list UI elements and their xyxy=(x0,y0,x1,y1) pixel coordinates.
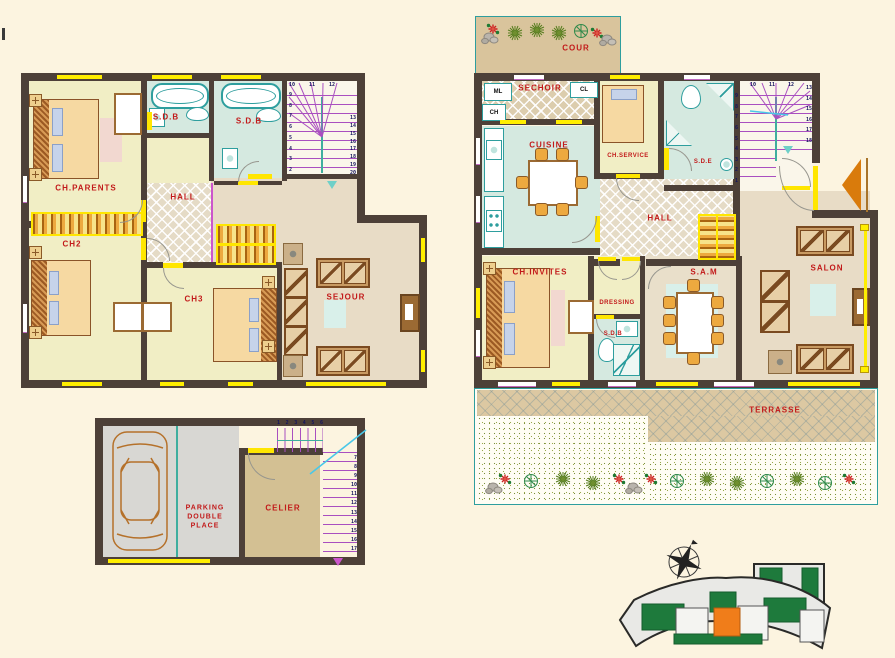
parking-line: DOUBLE xyxy=(186,512,225,521)
plant-pot-icon xyxy=(29,168,42,181)
chair xyxy=(687,279,700,292)
wall xyxy=(646,259,740,266)
terrasse-paved xyxy=(477,390,875,416)
pillow xyxy=(52,144,63,172)
wardrobe xyxy=(698,214,718,260)
chair xyxy=(711,314,724,327)
bed-ch-invites xyxy=(486,268,550,368)
wall xyxy=(812,73,820,163)
wall xyxy=(21,73,29,388)
toilet xyxy=(186,107,209,121)
window xyxy=(62,382,102,386)
pillow xyxy=(611,89,637,100)
stair-numbers-right: 131415161718 xyxy=(803,86,812,144)
room-label-cuisine: CUISINE xyxy=(529,141,568,150)
room-dressing-upper xyxy=(147,138,209,183)
closet-cl: CL xyxy=(570,82,598,98)
window xyxy=(500,120,526,124)
room-label-ch-service: CH.SERVICE xyxy=(607,153,649,159)
wardrobe xyxy=(216,224,276,245)
car-icon xyxy=(108,426,172,556)
rug xyxy=(324,300,346,328)
wall xyxy=(357,215,427,223)
desk xyxy=(114,93,142,135)
kitchen-table xyxy=(528,160,578,206)
plant-pot-icon xyxy=(262,276,275,289)
parking-line: PLACE xyxy=(186,522,225,531)
chair xyxy=(516,176,529,189)
bed-ch2 xyxy=(31,260,91,336)
pillow xyxy=(52,108,63,136)
side-table xyxy=(283,355,303,377)
desk xyxy=(113,302,143,332)
wall xyxy=(277,268,282,380)
bathtub xyxy=(221,83,281,109)
window xyxy=(608,382,636,386)
window xyxy=(23,304,27,332)
washbasin xyxy=(222,148,238,169)
window xyxy=(228,382,253,386)
stove xyxy=(486,210,502,232)
wall xyxy=(870,210,878,388)
side-table xyxy=(283,243,303,265)
desk xyxy=(142,302,172,332)
window-frame xyxy=(864,230,867,366)
wall xyxy=(209,81,214,181)
stair-numbers-right: 1314151617181920 xyxy=(347,116,356,176)
plant-pot-icon xyxy=(483,262,496,275)
garage-door xyxy=(108,559,210,563)
armchair xyxy=(760,270,790,302)
armchair xyxy=(284,268,308,298)
stair-direction-arrow xyxy=(327,181,337,189)
bed-ch-service xyxy=(602,85,644,143)
room-label-hall-ground: HALL xyxy=(647,214,672,223)
window xyxy=(23,176,27,202)
washbasin xyxy=(720,158,733,171)
chair xyxy=(687,352,700,365)
stair-diagonal xyxy=(305,425,370,480)
washing-machine: ML xyxy=(484,83,512,101)
window xyxy=(684,75,710,79)
window xyxy=(556,120,582,124)
window xyxy=(476,196,480,222)
wall xyxy=(239,448,245,557)
tv-screen xyxy=(857,299,863,314)
chair xyxy=(663,296,676,309)
window xyxy=(552,382,580,386)
stair-direction-arrow xyxy=(783,146,793,154)
armchair xyxy=(284,326,308,356)
stair-numbers-left: 987654321 xyxy=(735,94,743,184)
room-label-hall: HALL xyxy=(170,193,195,202)
window xyxy=(498,382,536,386)
bedside-rug xyxy=(551,290,565,346)
window xyxy=(57,75,102,79)
kitchen-sink xyxy=(486,140,502,160)
armchair xyxy=(284,297,308,327)
pillow xyxy=(249,298,259,322)
window xyxy=(656,382,698,386)
window xyxy=(160,382,184,386)
plant-pot-icon xyxy=(29,94,42,107)
room-label-sam: S.A.M xyxy=(690,268,717,277)
chair xyxy=(556,148,569,161)
pillow xyxy=(504,281,515,313)
chair xyxy=(556,203,569,216)
window xyxy=(476,330,480,356)
terrasse-plants xyxy=(479,455,873,501)
window xyxy=(152,75,192,79)
wardrobe xyxy=(716,214,736,260)
room-label-ch2: CH2 xyxy=(62,240,81,249)
room-label-sechoir: SECHOIR xyxy=(518,84,561,93)
window-frame-end xyxy=(860,366,869,373)
bed-headboard xyxy=(487,269,502,367)
room-label-terrasse: TERRASSE xyxy=(749,406,801,415)
sofa xyxy=(316,258,370,288)
rug xyxy=(810,284,836,316)
wall xyxy=(664,185,740,191)
parking-line: PARKING xyxy=(186,503,225,512)
room-label-sdb-ground: S.D.B xyxy=(604,331,623,337)
edge-mark xyxy=(2,28,5,40)
dining-table xyxy=(676,292,714,354)
kitchen-counter xyxy=(484,128,504,192)
tv-screen xyxy=(405,304,413,320)
door-frame xyxy=(211,183,213,262)
chair xyxy=(711,296,724,309)
plant-pot-icon xyxy=(483,356,496,369)
armchair xyxy=(760,301,790,333)
toilet xyxy=(681,85,701,109)
window xyxy=(714,382,754,386)
shower xyxy=(613,344,640,376)
pillow xyxy=(49,301,59,325)
room-label-sejour: SEJOUR xyxy=(327,293,366,302)
window xyxy=(421,350,425,372)
room-label-ch-parents: CH.PARENTS xyxy=(55,184,116,193)
room-label-ch-invites: CH.INVITES xyxy=(513,268,568,277)
parking-divider xyxy=(176,426,178,557)
wall xyxy=(474,248,600,255)
floor-plan-drawing: 101112 98765432 1314151617181920 CH.PARE… xyxy=(0,0,895,658)
door-leaf xyxy=(141,238,146,260)
room-label-sdb-left: S.D.B xyxy=(153,113,179,122)
pillow xyxy=(504,323,515,355)
chair xyxy=(663,332,676,345)
bed-headboard xyxy=(32,261,47,335)
window xyxy=(221,75,261,79)
entry-arrow-icon xyxy=(842,159,861,211)
wall xyxy=(640,256,645,380)
window xyxy=(788,382,860,386)
chair xyxy=(663,314,676,327)
stair-numbers-fan: 101112 xyxy=(750,83,794,88)
chair xyxy=(711,332,724,345)
window xyxy=(421,238,425,262)
desk xyxy=(568,300,594,334)
sofa xyxy=(796,226,854,256)
pillow xyxy=(49,271,59,295)
room-label-dressing: DRESSING xyxy=(599,300,634,306)
room-label-ch3: CH3 xyxy=(184,295,203,304)
room-label-cour: COUR xyxy=(562,44,590,53)
chair xyxy=(575,176,588,189)
bed-ch-parents xyxy=(33,99,99,179)
terrasse-paved xyxy=(648,416,875,442)
chair xyxy=(535,148,548,161)
window xyxy=(514,75,544,79)
chair xyxy=(535,203,548,216)
room-label-sde: S.D.E xyxy=(694,159,712,165)
plant-pot-icon xyxy=(29,326,42,339)
plant-pot-icon xyxy=(262,340,275,353)
door-leaf xyxy=(147,112,152,130)
tv-unit xyxy=(852,288,870,326)
window xyxy=(476,138,480,164)
room-label-salon: SALON xyxy=(811,264,844,273)
window xyxy=(306,382,386,386)
plant-pot-icon xyxy=(29,246,42,259)
cour-plants xyxy=(477,17,617,51)
stair-direction-arrow xyxy=(333,558,343,566)
window xyxy=(476,288,480,318)
room-label-sdb-right: S.D.B xyxy=(236,117,262,126)
site-plan xyxy=(614,558,838,654)
stair-numbers-fan: 101112 xyxy=(289,83,335,88)
water-heater: CH xyxy=(482,104,506,121)
sofa xyxy=(316,346,370,376)
stair-numbers-left: 98765432 xyxy=(289,93,297,173)
tv-unit xyxy=(400,294,420,332)
window xyxy=(610,75,640,79)
wall xyxy=(147,133,209,138)
entry-arrow-line xyxy=(866,158,868,212)
wardrobe xyxy=(216,244,276,265)
window-frame-end xyxy=(860,224,869,231)
wall xyxy=(95,418,103,565)
wall xyxy=(141,262,163,268)
room-label-parking: PARKING DOUBLE PLACE xyxy=(186,503,225,530)
sofa xyxy=(796,344,854,374)
room-label-celier: CELIER xyxy=(265,504,300,513)
pillow xyxy=(249,328,259,352)
wall xyxy=(736,256,742,380)
bed-headboard xyxy=(34,100,49,178)
bathtub xyxy=(151,83,209,109)
wall xyxy=(812,210,878,218)
side-table xyxy=(768,350,792,374)
wall xyxy=(357,73,365,223)
